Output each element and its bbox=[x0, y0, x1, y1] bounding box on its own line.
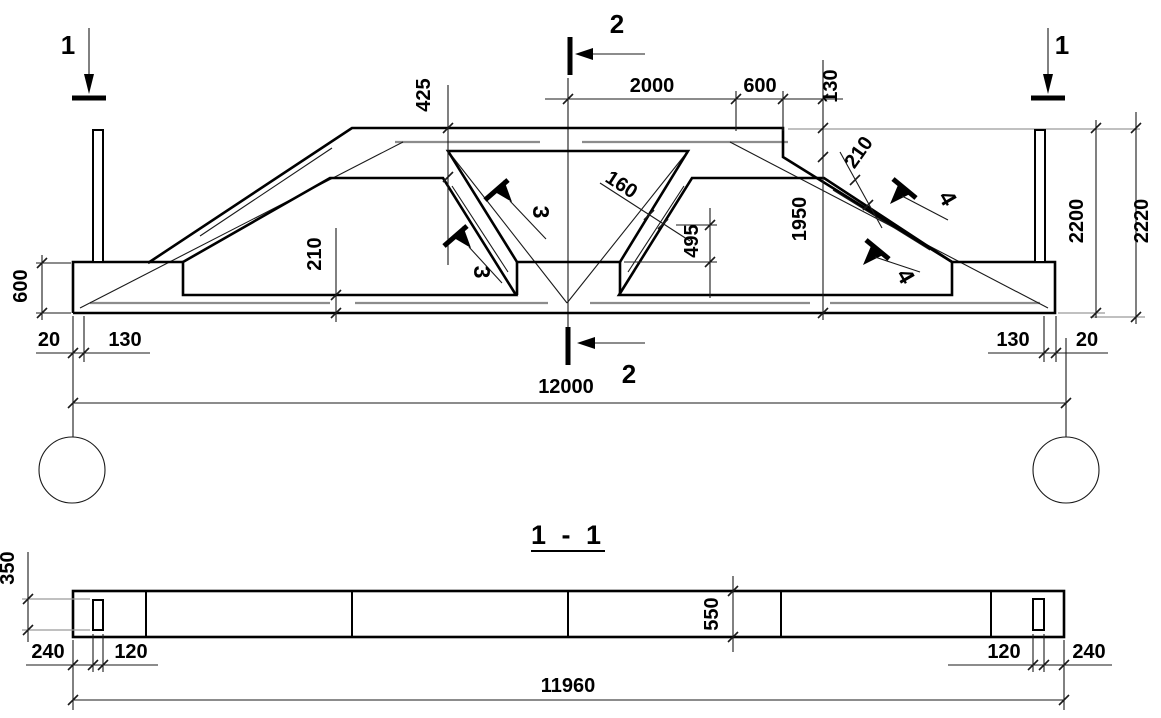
section-cut-3-upper: 3 bbox=[485, 180, 554, 239]
dim-160: 160 bbox=[601, 167, 641, 204]
section-1-1-view: 1 - 1 bbox=[0, 520, 1112, 710]
drawing-page: 1 1 2 2 3 3 bbox=[0, 0, 1161, 718]
section-arrow-icon bbox=[495, 180, 512, 202]
dim-600-left: 600 bbox=[10, 269, 32, 302]
section-arrow-icon bbox=[454, 226, 471, 248]
technical-drawing: 1 1 2 2 3 3 bbox=[0, 0, 1161, 718]
dim-2000: 2000 bbox=[630, 75, 675, 97]
dim-240-right: 240 bbox=[1072, 641, 1105, 663]
section-label-2-bottom: 2 bbox=[622, 359, 636, 389]
dim-12000: 12000 bbox=[538, 376, 594, 398]
dim-425: 425 bbox=[413, 78, 435, 111]
left-grid-bubble bbox=[39, 437, 105, 503]
dim-130-top: 130 bbox=[820, 69, 842, 102]
dim-495: 495 bbox=[681, 224, 703, 257]
dim-130-left: 130 bbox=[108, 329, 141, 351]
dim-210-slope: 210 bbox=[841, 133, 878, 173]
section-cut-4-upper: 4 bbox=[890, 179, 962, 220]
dim-550: 550 bbox=[701, 597, 723, 630]
dim-210-bottom: 210 bbox=[304, 237, 326, 270]
right-grid-bubble bbox=[1033, 437, 1099, 503]
section-label-3-lower: 3 bbox=[469, 266, 495, 279]
dim-1950: 1950 bbox=[789, 197, 811, 242]
left-embed-hole bbox=[93, 600, 103, 630]
dim-240-left: 240 bbox=[31, 641, 64, 663]
grid-bubbles bbox=[39, 437, 1099, 503]
dim-120-right: 120 bbox=[987, 641, 1020, 663]
dim-2220: 2220 bbox=[1131, 199, 1153, 244]
section-arrow-left-icon bbox=[575, 48, 593, 60]
truss-outline bbox=[73, 128, 1055, 313]
section-label-1-left: 1 bbox=[61, 30, 75, 60]
dim-20-left: 20 bbox=[38, 329, 60, 351]
dim-600-top: 600 bbox=[743, 75, 776, 97]
section-label-4-upper: 4 bbox=[933, 186, 962, 210]
left-post bbox=[93, 130, 103, 262]
section-arrow-down-icon bbox=[1043, 74, 1053, 94]
section-cut-2-top: 2 bbox=[570, 9, 645, 75]
dim-11960: 11960 bbox=[541, 675, 596, 697]
section-label-1-right: 1 bbox=[1055, 30, 1069, 60]
truss-elevation: 1 1 2 2 3 3 bbox=[10, 9, 1153, 503]
dim-350: 350 bbox=[0, 551, 19, 584]
section-cut-1-right: 1 bbox=[1031, 28, 1069, 98]
reinforcement-lines bbox=[90, 129, 1145, 317]
right-post bbox=[1035, 130, 1045, 262]
section-label-4-lower: 4 bbox=[891, 264, 920, 288]
axis-lines bbox=[80, 78, 1048, 327]
dim-130-right: 130 bbox=[996, 329, 1029, 351]
section-label-3-upper: 3 bbox=[528, 206, 554, 219]
section-arrow-left-icon bbox=[577, 337, 595, 349]
section-label-2-top: 2 bbox=[610, 9, 624, 39]
dim-20-right: 20 bbox=[1076, 329, 1098, 351]
dim-2200: 2200 bbox=[1066, 199, 1088, 244]
dimension-texts: 2000 600 130 425 160 210 1950 2200 2220 … bbox=[10, 69, 1153, 398]
dim-120-left: 120 bbox=[114, 641, 147, 663]
right-embed-hole bbox=[1033, 599, 1044, 630]
section-arrow-down-icon bbox=[84, 74, 94, 94]
section-cut-3-lower: 3 bbox=[444, 226, 502, 283]
section-cut-4-lower: 4 bbox=[863, 240, 920, 288]
section-cut-1-left: 1 bbox=[61, 28, 106, 98]
section-title: 1 - 1 bbox=[531, 520, 605, 550]
